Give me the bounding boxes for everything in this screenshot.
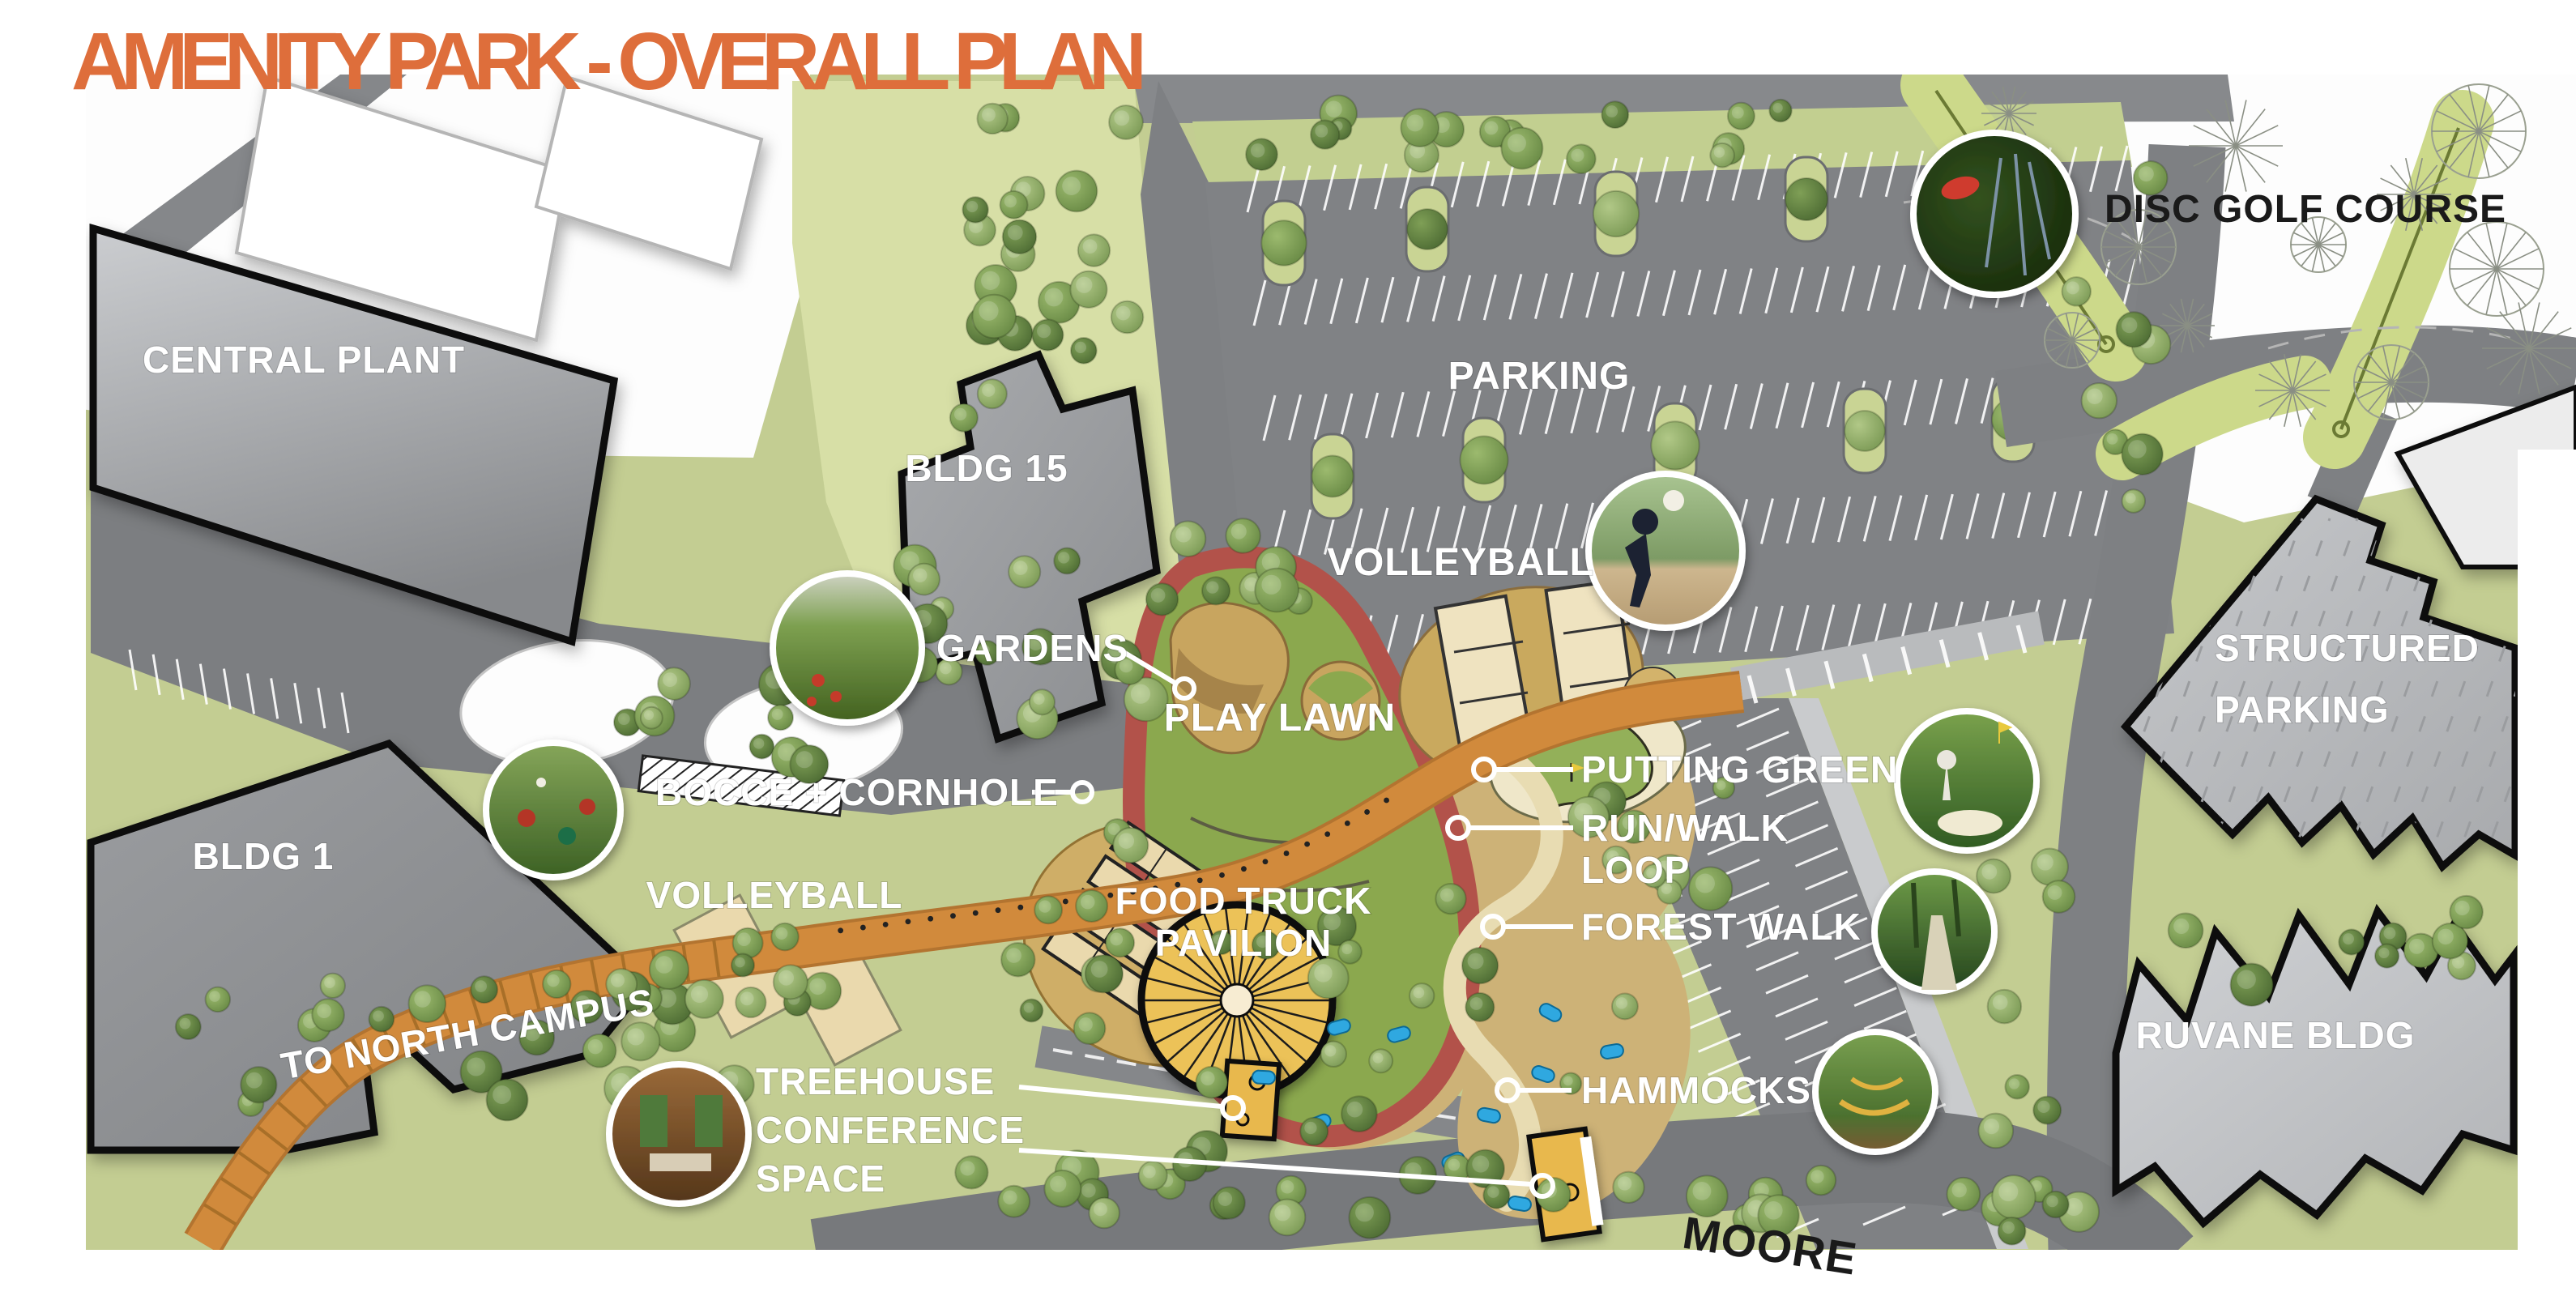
path-dot [1219, 872, 1225, 878]
tree-icon [1111, 301, 1144, 334]
tree-icon [650, 950, 689, 989]
tree-icon [774, 965, 808, 999]
tree-icon [1806, 1166, 1836, 1195]
tree-icon [1320, 1042, 1346, 1067]
tree-icon [641, 707, 663, 729]
tree-icon [658, 667, 690, 700]
label-hammocks: HAMMOCKS [1581, 1069, 1811, 1111]
path-dot [1345, 821, 1350, 826]
photo-putting-green[interactable] [1897, 711, 2036, 850]
label-run-walk: RUN/WALK [1581, 807, 1789, 849]
tree-icon [771, 923, 799, 951]
tree-icon [1988, 990, 2021, 1023]
tree-icon [2042, 1192, 2068, 1217]
tree-icon [1311, 455, 1353, 497]
hammock-icon [1252, 1070, 1276, 1084]
tree-icon [1612, 993, 1638, 1019]
tree-icon [487, 1079, 528, 1120]
tree-icon [1977, 859, 2011, 893]
tree-icon [1030, 689, 1055, 714]
tree-icon [1369, 1049, 1392, 1072]
tree-icon [2033, 1097, 2061, 1124]
tree-icon [1311, 121, 1339, 149]
tree-icon [1947, 1178, 1980, 1211]
tree-icon [1146, 583, 1178, 615]
path-dot [973, 910, 979, 916]
tree-icon [176, 1014, 201, 1039]
tree-icon [1056, 171, 1098, 212]
path-dot [1364, 809, 1370, 815]
tree-icon [1246, 139, 1277, 170]
photo-gardens[interactable] [773, 573, 922, 723]
path-dot [1263, 859, 1269, 864]
label-forest-walk: FOREST WALK [1581, 906, 1862, 948]
tree-icon [962, 197, 987, 222]
path-dot [996, 907, 1001, 913]
path-dot [928, 916, 933, 922]
tree-icon [621, 1022, 659, 1060]
label-food-truck: FOOD TRUCK [1115, 880, 1372, 922]
margin-bottom [0, 1250, 2576, 1296]
window-detail [640, 1095, 667, 1147]
tree-icon [2375, 944, 2399, 967]
tree-icon [1341, 1096, 1377, 1132]
photo-volleyball[interactable] [1589, 474, 1742, 628]
tree-icon [206, 987, 231, 1013]
tree-icon [1728, 103, 1755, 130]
tree-icon [2032, 849, 2068, 885]
tree-icon [1269, 1200, 1306, 1236]
tree-icon [1462, 948, 1498, 983]
tree-icon [950, 404, 978, 432]
tree-icon [2450, 896, 2482, 928]
tree-icon [1054, 548, 1080, 573]
tree-icon [768, 705, 793, 730]
label-disc-golf-course: DISC GOLF COURSE [2105, 188, 2506, 231]
tree-icon [1001, 943, 1034, 976]
tree-icon [685, 980, 723, 1018]
tree-icon [1070, 271, 1107, 308]
margin-right [2518, 450, 2576, 1296]
path-dot [906, 919, 911, 924]
tree-icon [1349, 1197, 1390, 1238]
tree-icon [1338, 940, 1362, 964]
tree-icon [1000, 191, 1028, 219]
tree-icon [2043, 880, 2075, 913]
tree-icon [321, 974, 345, 998]
label-gardens: GARDENS [936, 627, 1128, 669]
tomato-detail [807, 697, 817, 706]
path-dot [1107, 893, 1113, 898]
tree-icon [955, 1156, 987, 1188]
label-ruvane-bldg: RUVANE BLDG [2136, 1014, 2416, 1056]
tree-icon [1034, 896, 1062, 923]
label-space: SPACE [756, 1157, 885, 1200]
path-dot [1284, 850, 1290, 856]
tree-icon [1071, 338, 1097, 364]
tree-icon [1710, 143, 1734, 168]
tree-icon [1085, 955, 1123, 992]
label-putting-green: PUTTING GREEN [1581, 748, 1898, 791]
label-volleyball-north: VOLLEYBALL [1327, 541, 1594, 584]
tree-icon [241, 1067, 276, 1102]
tree-icon [978, 379, 1007, 408]
tree-icon [2122, 489, 2145, 513]
page-title: AMENITY PARK - OVERALL PLAN [71, 16, 1149, 107]
tree-icon [1461, 437, 1508, 484]
tree-icon [1601, 101, 1628, 128]
tree-icon [2169, 914, 2203, 949]
tree-icon [1483, 1183, 1509, 1209]
tree-icon [2082, 383, 2117, 418]
tree-icon [1501, 128, 1542, 169]
photo-disc-golf[interactable] [1913, 133, 2075, 295]
tree-icon [1021, 1000, 1043, 1022]
tree-icon [1465, 993, 1494, 1021]
tree-icon [1003, 220, 1037, 254]
path-dot [1241, 866, 1247, 872]
tree-icon [1300, 1118, 1328, 1145]
path-dot [860, 925, 866, 931]
tree-icon [1651, 421, 1699, 469]
site-plan-canvas: AMENITY PARK - OVERALL PLAN CENTRAL PLAN… [0, 0, 2576, 1296]
tree-icon [977, 104, 1007, 134]
tree-icon [1992, 1175, 2035, 1218]
tree-icon [471, 976, 497, 1003]
photo-bocce[interactable] [486, 743, 621, 877]
tomato-detail [830, 691, 842, 702]
tree-icon [2339, 929, 2364, 954]
margin-left [0, 0, 86, 1296]
label-parking: PARKING [1448, 355, 1631, 398]
tree-icon [1113, 828, 1148, 863]
tree-icon [1978, 1114, 2013, 1149]
tree-icon [543, 970, 570, 998]
label-treehouse: TREEHOUSE [756, 1060, 995, 1102]
tree-icon [1196, 1067, 1227, 1098]
label-loop: LOOP [1581, 849, 1690, 891]
tree-icon [1078, 234, 1110, 266]
path-dot [1017, 905, 1023, 910]
photo-forest-walk[interactable] [1874, 872, 1994, 991]
tree-icon [1593, 191, 1639, 237]
tree-icon [1139, 1162, 1167, 1190]
label-play-lawn: PLAY LAWN [1164, 697, 1396, 740]
tree-icon [2116, 312, 2151, 347]
label-pavilion: PAVILION [1155, 922, 1332, 964]
tree-icon [736, 987, 766, 1017]
path-dot [838, 927, 843, 933]
tomato-detail [812, 674, 825, 687]
label-structured: STRUCTURED [2215, 627, 2480, 669]
tree-icon [1202, 577, 1230, 604]
tree-icon [2005, 1075, 2028, 1098]
sand-detail [1938, 810, 2002, 836]
path-dot [883, 922, 889, 927]
window-detail [695, 1095, 723, 1147]
tree-icon [1261, 220, 1306, 265]
tree-icon [1613, 1172, 1644, 1203]
label-structured-parking: PARKING [2215, 688, 2390, 731]
tree-icon [1074, 1013, 1106, 1044]
pavilion-hub [1221, 984, 1253, 1017]
photo-hammocks[interactable] [1815, 1032, 1935, 1152]
path-dot [1324, 831, 1330, 837]
path-dot [1304, 842, 1310, 847]
tree-icon [731, 954, 754, 977]
tree-icon [1769, 100, 1791, 122]
tree-icon [972, 295, 1016, 339]
tree-icon [998, 1186, 1030, 1217]
tree-icon [1032, 319, 1063, 350]
amenity-park-plan-page: AMENITY PARK - OVERALL PLAN CENTRAL PLAN… [0, 0, 2576, 1296]
tree-icon [1410, 983, 1434, 1008]
tree-icon [1255, 569, 1299, 612]
label-bldg-1: BLDG 1 [193, 835, 335, 877]
tree-icon [908, 564, 940, 595]
tree-icon [1106, 928, 1134, 957]
ball-detail [1663, 490, 1684, 511]
label-bldg-15: BLDG 15 [905, 447, 1068, 489]
tree-icon [1785, 178, 1828, 220]
table-detail [650, 1153, 711, 1171]
tree-icon [1689, 868, 1732, 910]
tree-icon [733, 928, 763, 958]
label-bocce-cornhole: BOCCE + CORNHOLE [655, 771, 1059, 813]
label-volleyball-south: VOLLEYBALL [646, 874, 903, 916]
tree-icon [1435, 884, 1465, 914]
tree-icon [1845, 411, 1885, 451]
tree-icon [1044, 1170, 1081, 1207]
tree-icon [2231, 964, 2273, 1006]
tree-icon [1567, 144, 1596, 173]
tree-icon [1089, 1198, 1120, 1229]
tree-icon [1308, 958, 1349, 999]
tree-icon [1998, 1217, 2026, 1245]
tree-icon [2062, 277, 2091, 305]
path-dot [950, 913, 956, 919]
tree-icon [1407, 209, 1448, 249]
photo-treehouse[interactable] [609, 1064, 748, 1204]
tree-icon [583, 1034, 616, 1068]
path-dot [1063, 899, 1068, 905]
tree-icon [1213, 1187, 1245, 1218]
tree-icon [2122, 434, 2162, 475]
path-dot [1384, 798, 1389, 804]
tree-icon [1401, 109, 1439, 147]
label-conference: CONFERENCE [756, 1109, 1025, 1151]
tree-icon [1076, 890, 1107, 922]
tree-icon [1226, 518, 1260, 552]
tree-icon [1171, 522, 1206, 557]
tree-icon [1009, 556, 1040, 587]
tree-icon [312, 999, 344, 1031]
tree-icon [749, 735, 774, 759]
tree-icon [1109, 105, 1143, 139]
label-central-plant: CENTRAL PLANT [143, 339, 465, 381]
